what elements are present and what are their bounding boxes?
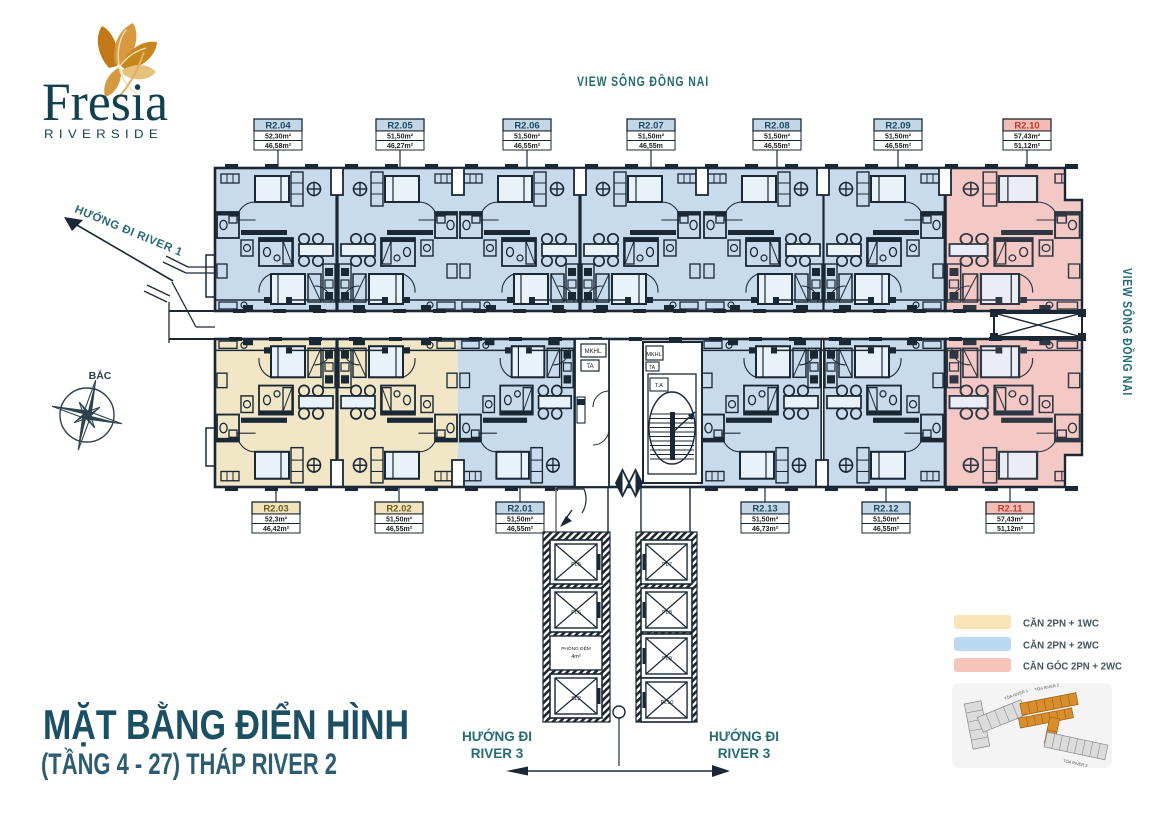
svg-text:R2.08: R2.08 [764, 121, 789, 132]
svg-text:R2.07: R2.07 [638, 121, 663, 132]
svg-text:46,58m²: 46,58m² [265, 143, 292, 150]
svg-text:46,27m²: 46,27m² [387, 143, 414, 150]
svg-text:51,12m²: 51,12m² [997, 526, 1024, 533]
svg-text:HƯỚNG ĐI: HƯỚNG ĐI [462, 729, 532, 744]
svg-text:PL5: PL5 [571, 562, 581, 568]
svg-text:MKHL: MKHL [646, 352, 661, 358]
svg-text:MKHL: MKHL [585, 349, 602, 355]
svg-text:T.A: T.A [655, 383, 663, 389]
svg-text:R2.06: R2.06 [514, 121, 539, 132]
svg-text:RIVER 3: RIVER 3 [718, 746, 771, 761]
svg-text:46,55m²: 46,55m² [885, 143, 912, 150]
svg-text:VIEW SÔNG ĐỒNG NAI: VIEW SÔNG ĐỒNG NAI [577, 72, 709, 89]
svg-text:51,50m²: 51,50m² [386, 517, 413, 524]
svg-text:46,73m²: 46,73m² [752, 526, 779, 533]
svg-text:PL9: PL9 [662, 656, 672, 662]
svg-text:PL6: PL6 [571, 610, 581, 616]
svg-text:PL10: PL10 [661, 700, 674, 706]
svg-text:57,43m²: 57,43m² [997, 517, 1024, 524]
svg-text:R2.04: R2.04 [265, 121, 291, 132]
svg-text:R2.09: R2.09 [885, 121, 910, 132]
svg-text:R2.12: R2.12 [873, 504, 898, 515]
svg-text:46,55m²: 46,55m² [873, 526, 900, 533]
svg-text:51,50m²: 51,50m² [507, 517, 534, 524]
svg-text:R2.03: R2.03 [263, 504, 288, 515]
svg-text:46,55m²: 46,55m² [764, 143, 791, 150]
svg-text:MẶT BẰNG ĐIỂN HÌNH: MẶT BẰNG ĐIỂN HÌNH [43, 700, 409, 748]
svg-text:4m²: 4m² [571, 654, 581, 660]
svg-text:51,50m²: 51,50m² [638, 134, 665, 141]
svg-text:R2.13: R2.13 [752, 504, 777, 515]
svg-text:CĂN 2PN + 1WC: CĂN 2PN + 1WC [1023, 617, 1099, 630]
svg-text:51,50m²: 51,50m² [885, 134, 912, 141]
svg-text:PL8: PL8 [662, 610, 672, 616]
svg-text:52,30m²: 52,30m² [265, 134, 292, 141]
svg-text:R2.02: R2.02 [386, 504, 411, 515]
svg-text:51,50m²: 51,50m² [873, 517, 900, 524]
svg-text:57,43m²: 57,43m² [1014, 134, 1041, 141]
svg-text:PL7: PL7 [662, 562, 672, 568]
svg-text:R2.11: R2.11 [998, 504, 1024, 515]
svg-text:46,55m: 46,55m [639, 143, 663, 150]
svg-text:51,50m²: 51,50m² [752, 517, 779, 524]
svg-text:46,55m²: 46,55m² [514, 143, 541, 150]
svg-text:51,12m²: 51,12m² [1014, 143, 1041, 150]
svg-text:51,50m²: 51,50m² [764, 134, 791, 141]
svg-text:CĂN GÓC 2PN + 2WC: CĂN GÓC 2PN + 2WC [1023, 660, 1122, 673]
svg-text:Fresia: Fresia [42, 72, 168, 132]
svg-text:52,3m²: 52,3m² [265, 517, 288, 524]
svg-text:R2.01: R2.01 [507, 504, 533, 515]
svg-text:51,50m²: 51,50m² [387, 134, 414, 141]
svg-text:VIEW SÔNG ĐỒNG NAI: VIEW SÔNG ĐỒNG NAI [1120, 268, 1135, 396]
svg-text:(TẦNG 4 - 27) THÁP RIVER 2: (TẦNG 4 - 27) THÁP RIVER 2 [41, 747, 337, 781]
svg-text:BẮC: BẮC [89, 369, 112, 382]
svg-text:RIVER 3: RIVER 3 [471, 746, 524, 761]
svg-text:46,55m²: 46,55m² [507, 526, 534, 533]
svg-text:R2.10: R2.10 [1014, 121, 1039, 132]
svg-text:CĂN 2PN + 2WC: CĂN 2PN + 2WC [1023, 639, 1099, 652]
svg-text:46,55m²: 46,55m² [386, 526, 413, 533]
svg-text:RIVERSIDE: RIVERSIDE [44, 129, 163, 141]
svg-text:TA: TA [649, 365, 656, 371]
svg-text:HƯỚNG ĐI: HƯỚNG ĐI [709, 729, 779, 744]
svg-text:TA: TA [586, 364, 593, 370]
svg-text:46,42m²: 46,42m² [263, 526, 290, 533]
svg-text:R2.05: R2.05 [387, 121, 413, 132]
svg-text:51,50m²: 51,50m² [514, 134, 541, 141]
svg-text:SL2: SL2 [571, 696, 581, 702]
